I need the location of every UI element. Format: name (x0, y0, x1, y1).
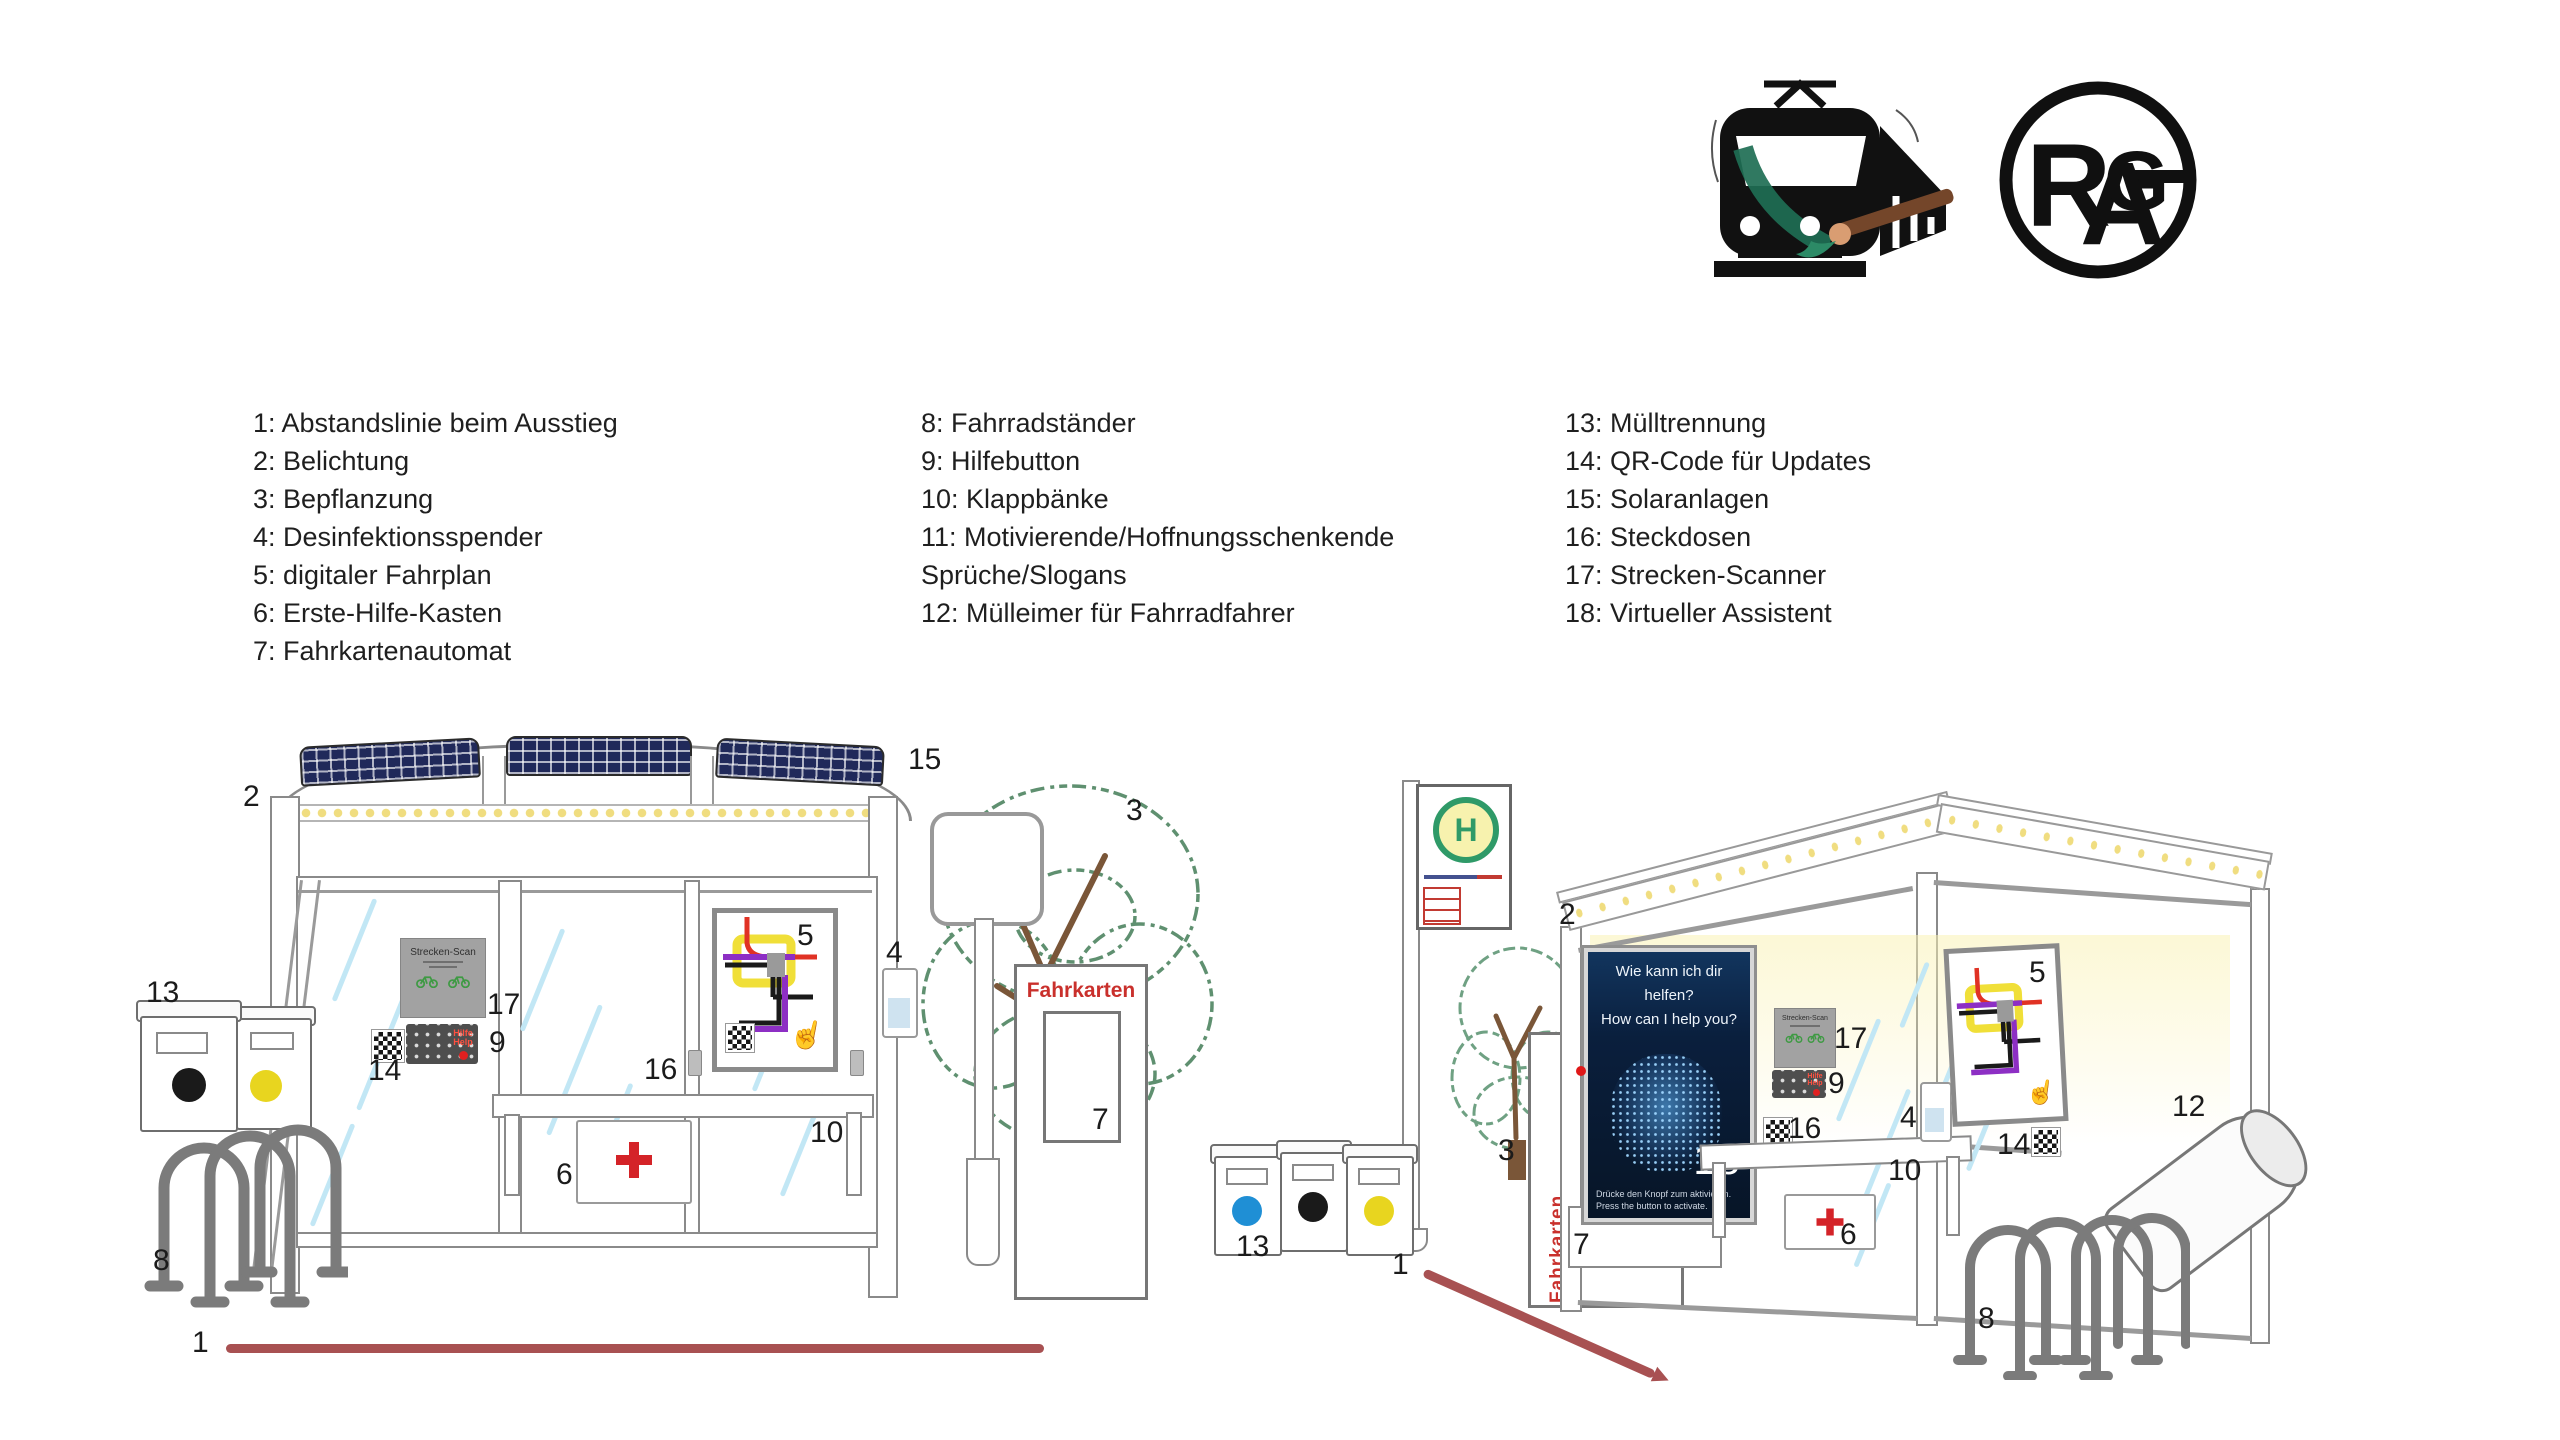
callout-label-3: 3 (1498, 1136, 1515, 1166)
help-button-keypad: Hilfe Help (406, 1024, 478, 1064)
route-scanner-title: Strecken-Scan (1775, 1015, 1835, 1022)
callout-label-17: 17 (487, 990, 520, 1020)
keypad-help-label-en: Help (1807, 1080, 1822, 1087)
legend-item: 16: Steckdosen (1565, 518, 1995, 556)
bench-leg (504, 1114, 520, 1196)
poster-footer-en: Press the button to activate. (1596, 1201, 1708, 1211)
callout-label-7: 7 (1573, 1230, 1590, 1260)
ticket-machine-title: Fahrkarten (1017, 967, 1145, 1003)
train-paintbrush-logo (1698, 78, 1968, 293)
blue-waste-icon (1232, 1196, 1262, 1226)
callout-label-4: 4 (1900, 1103, 1917, 1133)
legend-item: 17: Strecken-Scanner (1565, 556, 1995, 594)
ticket-machine-screen (1043, 1011, 1121, 1143)
legend-item: 11: Motivierende/Hoffnungsschenkende Spr… (921, 518, 1441, 594)
bus-stop-sign-blank (930, 812, 1044, 926)
callout-label-3: 3 (1126, 796, 1143, 826)
folding-bench (492, 1094, 874, 1118)
callout-label-5: 5 (2029, 958, 2046, 988)
power-socket-icon (688, 1050, 702, 1076)
rag-monogram-logo: R A G (1988, 58, 2208, 303)
legend-item: 4: Desinfektionsspender (253, 518, 733, 556)
wall-top-rail (298, 890, 872, 893)
bench-leg (846, 1112, 862, 1196)
legend-item: 3: Bepflanzung (253, 480, 733, 518)
route-scanner-panel: Strecken-Scan (1774, 1008, 1836, 1068)
dispenser-window (888, 998, 910, 1028)
led-light-strip (282, 804, 898, 822)
sign-pole-base (966, 1158, 1000, 1266)
bike-racks (1950, 1148, 2190, 1380)
waste-bin (1346, 1156, 1414, 1256)
yellow-waste-icon (1364, 1196, 1394, 1226)
keypad-help-label-en: Help (453, 1037, 473, 1047)
callout-label-9: 9 (489, 1028, 506, 1058)
bin-slot (1358, 1168, 1400, 1185)
legend-item: 6: Erste-Hilfe-Kasten (253, 594, 733, 632)
callout-label-4: 4 (886, 938, 903, 968)
ticket-machine: Fahrkarten (1014, 964, 1148, 1300)
bicycle-icon (1785, 1031, 1803, 1043)
top-rail (1934, 880, 2252, 907)
roof-fascia-lights (1562, 803, 1953, 931)
roof-rib (690, 756, 714, 808)
activation-button-icon (1576, 1066, 1586, 1076)
help-button-icon (1813, 1089, 1820, 1096)
dispenser-window (1925, 1108, 1944, 1132)
black-waste-icon (1298, 1192, 1328, 1222)
solar-panel (506, 736, 692, 776)
callout-label-6: 6 (1840, 1220, 1857, 1250)
sign-pole (974, 918, 994, 1166)
callout-label-6: 6 (556, 1160, 573, 1190)
legend-item: 12: Mülleimer für Fahrradfahrer (921, 594, 1441, 632)
callout-label-10: 10 (1888, 1156, 1921, 1186)
concept-diagram-page: R A G 1: Abstandslinie beim Ausstieg2: B… (0, 0, 2560, 1440)
help-button-keypad: Hilfe Help (1772, 1070, 1826, 1098)
keypad-help-label-de: Hilfe (1807, 1073, 1822, 1080)
callout-label-14: 14 (1997, 1130, 2030, 1160)
sanitizer-dispenser (1920, 1082, 1952, 1142)
bin-slot (1226, 1168, 1268, 1185)
power-socket-icon (850, 1050, 864, 1076)
h-sign-operator-line (1424, 875, 1502, 879)
poster-text-de-2: helfen? (1588, 984, 1750, 1008)
legend-column-2: 8: Fahrradständer9: Hilfebutton10: Klapp… (921, 404, 1441, 632)
callout-label-8: 8 (1978, 1304, 1995, 1334)
touch-hand-icon: ☝ (787, 1015, 828, 1055)
callout-label-9: 9 (1828, 1069, 1845, 1099)
callout-label-1: 1 (192, 1328, 209, 1358)
rag-letter-g: G (2104, 134, 2169, 228)
legend-item: 2: Belichtung (253, 442, 733, 480)
callout-label-7: 7 (1092, 1105, 1109, 1135)
legend-item: 1: Abstandslinie beim Ausstieg (253, 404, 733, 442)
callout-label-12: 12 (2172, 1092, 2205, 1122)
scanner-text-bar (429, 966, 457, 968)
callout-label-16: 16 (644, 1055, 677, 1085)
wall-bottom-rail (296, 1232, 878, 1248)
first-aid-box (576, 1120, 692, 1204)
h-sign-timetable-grid (1423, 887, 1461, 925)
callout-label-8: 8 (153, 1246, 170, 1276)
legend-item: 7: Fahrkartenautomat (253, 632, 733, 670)
callout-label-13: 13 (146, 978, 179, 1008)
poster-footer-de: Drücke den Knopf zum aktivieren. (1596, 1189, 1731, 1199)
callout-label-14: 14 (368, 1056, 401, 1086)
legend-item: 5: digitaler Fahrplan (253, 556, 733, 594)
callout-label-2: 2 (1559, 900, 1576, 930)
virtual-assistant-poster: Wie kann ich dir helfen? How can I help … (1584, 948, 1754, 1222)
legend-item: 9: Hilfebutton (921, 442, 1441, 480)
legend-item: 10: Klappbänke (921, 480, 1441, 518)
roof-rib (482, 756, 506, 808)
bin-opening (2227, 1097, 2321, 1199)
qr-code-icon (726, 1024, 754, 1052)
legend-column-3: 13: Mülltrennung14: QR-Code für Updates1… (1565, 404, 1995, 632)
scanner-text-bar (1790, 1025, 1820, 1027)
route-scanner-title: Strecken-Scan (401, 947, 485, 958)
bus-stop-h-sign: H (1416, 784, 1512, 930)
callout-label-10: 10 (810, 1118, 843, 1148)
bicycle-icon (415, 973, 439, 988)
red-cross-icon (616, 1142, 652, 1178)
legend-item: 14: QR-Code für Updates (1565, 442, 1995, 480)
legend-item: 18: Virtueller Assistent (1565, 594, 1995, 632)
scanner-text-bar (423, 961, 463, 963)
bicycle-icon (447, 973, 471, 988)
floor-rail (1578, 1300, 1918, 1321)
poster-text-en: How can I help you? (1588, 1008, 1750, 1032)
callout-label-13: 13 (1236, 1232, 1269, 1262)
callout-label-1: 1 (1392, 1250, 1409, 1280)
callout-label-15: 15 (908, 745, 941, 775)
sanitizer-dispenser (882, 968, 918, 1038)
bin-slot (1292, 1164, 1334, 1181)
callout-label-17: 17 (1834, 1024, 1867, 1054)
callout-label-16: 16 (1788, 1114, 1821, 1144)
legend-item: 13: Mülltrennung (1565, 404, 1995, 442)
poster-text-de-1: Wie kann ich dir (1588, 960, 1750, 984)
legend-item: 8: Fahrradständer (921, 404, 1441, 442)
digital-timetable-display: ☝ (1943, 943, 2068, 1127)
h-sign-circle: H (1433, 797, 1499, 863)
route-scanner-panel: Strecken-Scan (400, 938, 486, 1018)
distance-line (226, 1344, 1044, 1353)
first-aid-box (1784, 1194, 1876, 1250)
callout-label-2: 2 (243, 782, 260, 812)
touch-hand-icon: ☝ (2024, 1076, 2058, 1109)
help-button-icon (459, 1051, 468, 1060)
bicycle-icon (1807, 1031, 1825, 1043)
callout-label-5: 5 (797, 921, 814, 951)
legend-item: 15: Solaranlagen (1565, 480, 1995, 518)
waste-bin (1280, 1152, 1348, 1252)
legend-column-1: 1: Abstandslinie beim Ausstieg2: Belicht… (253, 404, 733, 670)
bench-leg (1712, 1162, 1726, 1238)
